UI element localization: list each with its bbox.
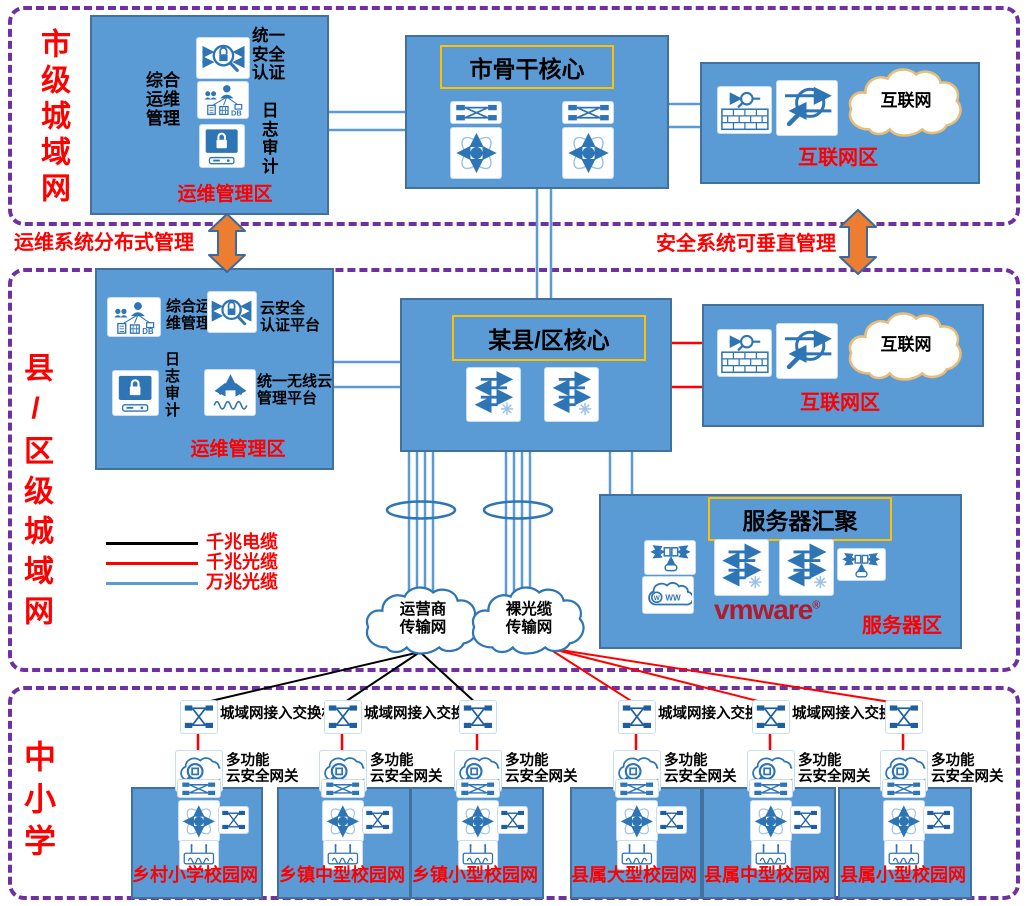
switch-icon — [562, 101, 614, 124]
switch-icon — [615, 779, 659, 798]
legend-line-fiber-1g — [106, 562, 198, 565]
legend-label-fiber-1g: 千兆光缆 — [206, 553, 278, 573]
access-switch-icon — [497, 806, 528, 834]
bare-fiber-transport-cloud: 裸光缆 传输网 — [468, 583, 590, 661]
unified-security-auth-icon — [196, 37, 250, 79]
county-log-label: 日 志 审 计 — [165, 352, 180, 420]
campus-label: 县属小型校园网 — [838, 866, 968, 886]
fiber-bundle-ties — [387, 502, 552, 519]
log-audit-icon — [199, 124, 245, 168]
ops-management-icon — [197, 81, 249, 119]
city-ops-zone-label: 运维管理区 — [160, 185, 290, 206]
core-router-icon — [883, 800, 925, 842]
county-section-label: 县/区级城域网 — [20, 352, 50, 635]
campus-label: 乡村小学校园网 — [131, 866, 259, 886]
access-switch-icon — [218, 806, 249, 834]
log-audit-icon — [112, 370, 159, 416]
internet-gateway-icon — [776, 80, 838, 136]
access-switch-icon — [618, 700, 656, 734]
access-switch-icon — [362, 806, 393, 834]
legend-label-fiber-10g: 万兆光缆 — [206, 573, 278, 593]
core-router-icon — [562, 127, 614, 179]
city-auth-label: 统一 安全 认证 — [252, 27, 285, 83]
server-agg-title: 服务器汇聚 — [708, 497, 892, 541]
divider-left-label: 运维系统分布式管理 — [14, 232, 194, 254]
core-router-icon — [616, 800, 658, 842]
access-switch-icon — [324, 700, 362, 734]
access-switch-icon — [180, 700, 218, 734]
campus-label: 乡镇中型校园网 — [277, 866, 407, 886]
gateway-label: 多功能 云安全网关 — [664, 753, 737, 786]
county-wireless-label: 统一无线云 管理平台 — [257, 374, 332, 408]
l3-switch-icon — [779, 539, 834, 596]
switch-icon — [450, 101, 502, 124]
city-log-label: 日 志 审 计 — [262, 102, 279, 177]
access-switch-icon — [885, 700, 923, 734]
county-core-title: 某县/区核心 — [452, 315, 646, 361]
county-ops-mgmt-label: 综合运 维管理 — [166, 299, 211, 333]
ops-management-icon — [107, 297, 161, 337]
internet-cloud-label: 互联网 — [845, 66, 967, 136]
county-ops-zone-label: 运维管理区 — [173, 440, 303, 461]
campus-label: 县属中型校园网 — [702, 866, 832, 886]
www-server-icon — [642, 576, 694, 614]
server-zone-label: 服务器区 — [862, 615, 942, 637]
access-switch-icon — [923, 806, 954, 834]
load-balancer-icon — [644, 540, 696, 575]
core-router-icon — [322, 800, 364, 842]
divider-right-label: 安全系统可垂直管理 — [656, 233, 836, 255]
core-router-icon — [178, 800, 220, 842]
city-internet-zone-label: 互联网区 — [758, 147, 918, 169]
l3-switch-icon — [714, 539, 769, 596]
city-ops-mgmt-label: 综合 运维 管理 — [146, 71, 180, 129]
internet-cloud-label: 互联网 — [845, 310, 967, 380]
county-cloud-auth-label: 云安全 认证平台 — [260, 301, 320, 335]
carrier-cloud-label: 运营商 传输网 — [362, 583, 484, 655]
access-switch-icon — [790, 806, 821, 834]
internet-cloud: 互联网 — [845, 310, 967, 386]
firewall-icon — [717, 86, 772, 134]
legend-label-copper: 千兆电缆 — [206, 533, 278, 553]
city-core-title: 市骨干核心 — [440, 45, 614, 89]
gateway-label: 多功能 云安全网关 — [505, 753, 578, 786]
county-internet-zone-label: 互联网区 — [760, 392, 920, 414]
schools-section-label: 中小学 — [22, 740, 54, 866]
bare-fiber-cloud-label: 裸光缆 传输网 — [468, 583, 590, 655]
wireless-controller-icon — [204, 369, 256, 416]
l3-switch-icon — [466, 367, 521, 422]
access-switch-icon — [752, 700, 790, 734]
gateway-label: 多功能 云安全网关 — [798, 753, 871, 786]
core-router-icon — [457, 800, 499, 842]
core-router-icon — [750, 800, 792, 842]
switch-icon — [177, 779, 221, 798]
switch-icon — [882, 779, 926, 798]
gateway-label: 多功能 云安全网关 — [226, 753, 299, 786]
vmware-logo: vmware® — [714, 594, 819, 626]
campus-label: 乡镇小型校园网 — [410, 866, 540, 886]
load-balancer-icon — [837, 548, 886, 581]
core-router-icon — [450, 127, 502, 179]
legend-line-copper — [106, 542, 198, 545]
access-switch-icon — [459, 700, 497, 734]
campus-label: 县属大型校园网 — [570, 866, 698, 886]
l3-switch-icon — [544, 367, 599, 422]
network-topology-diagram: 市级城域网 综合 运维 管理 统一 安全 认证 日 志 审 计 运维管理区 市骨… — [0, 0, 1028, 906]
legend-line-fiber-10g — [106, 582, 198, 585]
switch-icon — [321, 779, 365, 798]
city-section-label: 市级城域网 — [37, 28, 67, 208]
internet-gateway-icon — [776, 323, 838, 379]
internet-cloud: 互联网 — [845, 66, 967, 142]
access-switch-icon — [656, 806, 687, 834]
access-switch-label: 城域网接入交换机 — [220, 706, 336, 722]
firewall-icon — [717, 329, 772, 377]
switch-icon — [749, 779, 793, 798]
switch-icon — [456, 779, 500, 798]
gateway-label: 多功能 云安全网关 — [931, 753, 1004, 786]
cloud-security-auth-icon — [207, 291, 257, 333]
carrier-transport-cloud: 运营商 传输网 — [362, 583, 484, 661]
gateway-label: 多功能 云安全网关 — [370, 753, 443, 786]
